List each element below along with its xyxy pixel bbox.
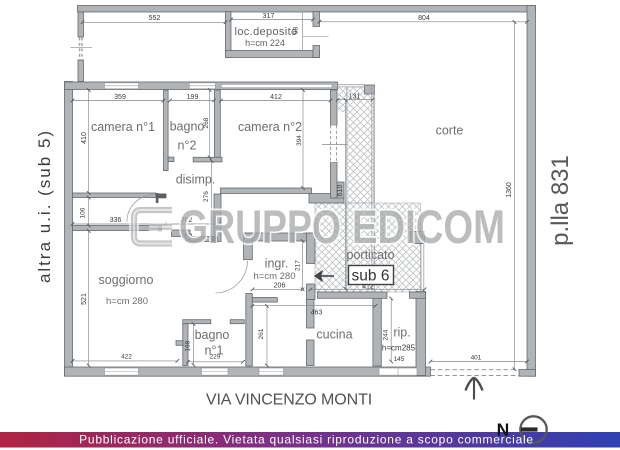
svg-text:261: 261 (258, 328, 265, 339)
svg-text:loc.deposito: loc.deposito (235, 26, 298, 38)
svg-text:106: 106 (80, 207, 87, 218)
svg-text:359: 359 (114, 94, 126, 101)
svg-text:camera n°2: camera n°2 (238, 120, 302, 134)
svg-text:EDICOM: EDICOM (352, 200, 505, 253)
svg-text:145: 145 (394, 356, 405, 363)
svg-text:131: 131 (349, 94, 361, 101)
svg-text:410: 410 (81, 132, 88, 144)
svg-text:ingr.: ingr. (265, 257, 289, 271)
svg-text:463: 463 (311, 310, 323, 317)
svg-text:soggiorno: soggiorno (99, 273, 154, 287)
svg-text:rip.: rip. (393, 326, 410, 340)
svg-text:h=cm285: h=cm285 (382, 344, 416, 353)
svg-text:Pubblicazione ufficiale. Vieta: Pubblicazione ufficiale. Vietata qualsia… (79, 433, 534, 447)
svg-text:422: 422 (121, 354, 132, 361)
svg-text:h=cm 224: h=cm 224 (245, 38, 285, 48)
svg-text:317: 317 (263, 13, 275, 20)
svg-text:n°1: n°1 (205, 344, 224, 358)
svg-text:1360: 1360 (506, 182, 513, 198)
svg-text:244: 244 (383, 329, 390, 340)
svg-text:disimp.: disimp. (176, 173, 216, 187)
svg-text:cucina: cucina (316, 328, 352, 342)
svg-text:camera n°1: camera n°1 (91, 120, 155, 134)
svg-text:bagno: bagno (195, 328, 230, 342)
svg-text:GRUPPO: GRUPPO (179, 200, 341, 253)
svg-text:bagno: bagno (170, 120, 205, 134)
svg-text:168: 168 (185, 340, 192, 351)
svg-text:412: 412 (270, 94, 282, 101)
svg-text:altra u.i. (sub 5): altra u.i. (sub 5) (35, 129, 54, 283)
svg-text:n°2: n°2 (178, 139, 197, 153)
svg-text:804: 804 (418, 15, 430, 22)
svg-text:394: 394 (296, 135, 303, 146)
svg-text:552: 552 (149, 15, 161, 22)
svg-text:206: 206 (274, 283, 286, 290)
svg-text:217: 217 (295, 260, 302, 271)
svg-text:610: 610 (337, 185, 344, 197)
svg-text:sub 6: sub 6 (352, 268, 390, 285)
svg-text:VIA VINCENZO MONTI: VIA VINCENZO MONTI (206, 392, 372, 409)
svg-text:199: 199 (187, 94, 199, 101)
svg-text:521: 521 (81, 293, 88, 305)
svg-text:h=cm 280: h=cm 280 (106, 296, 148, 307)
svg-text:336: 336 (110, 217, 122, 224)
svg-text:401: 401 (471, 355, 482, 362)
svg-text:p.lla 831: p.lla 831 (547, 155, 574, 246)
svg-text:corte: corte (436, 124, 464, 138)
svg-text:h=cm 280: h=cm 280 (254, 271, 296, 282)
